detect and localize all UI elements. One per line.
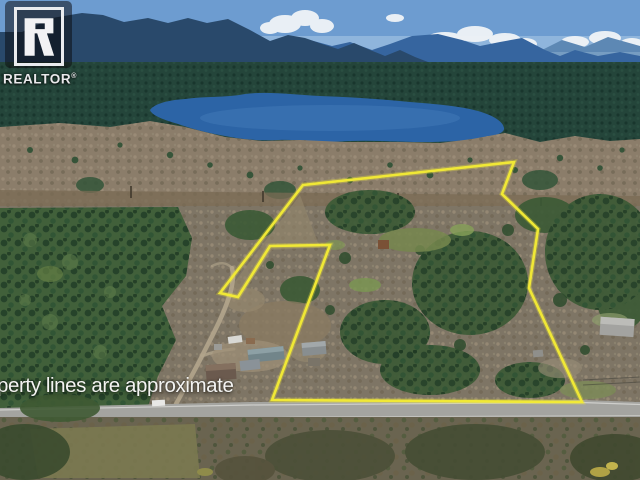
realtor-logo-frame [14,7,64,66]
shed [533,350,544,358]
shrubs [590,467,610,477]
cabin [378,240,389,249]
shrubs [197,468,213,476]
building-far-right [599,317,634,337]
listing-photo: REALTOR® perty lines are approximate [0,0,640,480]
vehicle-on-road [152,400,165,407]
realtor-watermark: REALTOR® [3,1,85,87]
shed [308,358,320,366]
realtor-logo-box [5,1,72,68]
shed [214,344,222,350]
house-east [302,341,327,356]
shrubs [606,462,618,470]
realtor-r-icon [21,15,57,59]
realtor-wordmark: REALTOR® [3,70,85,87]
shed [246,338,255,344]
outbuilding [240,359,261,371]
registered-trademark-icon: ® [71,73,77,80]
aerial-photo [0,0,640,480]
property-disclaimer-text: perty lines are approximate [0,373,233,399]
